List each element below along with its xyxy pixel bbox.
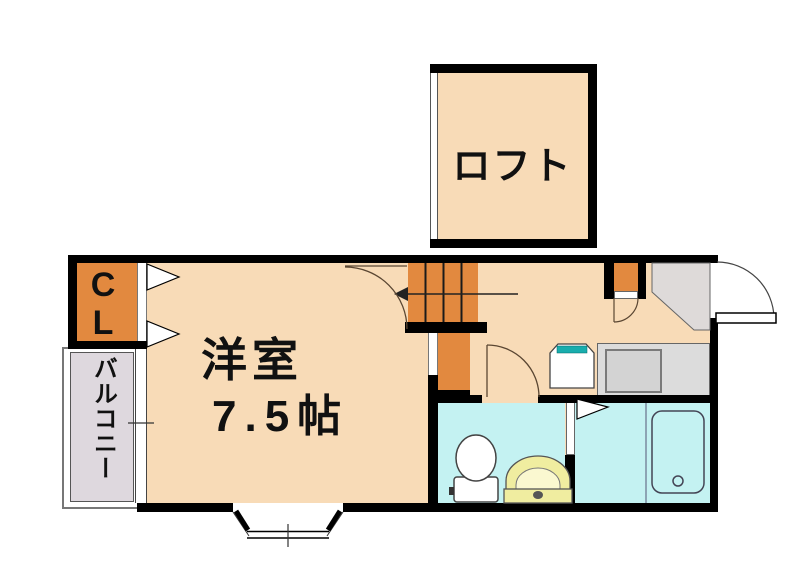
bathroom-folding-door-icon xyxy=(577,399,608,419)
entrance-door xyxy=(716,262,776,323)
floor-plan-canvas: ロフト CL バルコニー xyxy=(0,0,800,573)
washroom-door xyxy=(487,345,539,397)
washbasin xyxy=(504,456,572,503)
main-room-size: 7.5帖 xyxy=(212,380,349,444)
shoe-cabinet-door xyxy=(614,298,638,322)
entry-floor xyxy=(652,263,710,330)
bay-window xyxy=(233,511,343,547)
room-door xyxy=(345,266,407,329)
washing-machine xyxy=(550,344,594,388)
toilet xyxy=(449,435,498,502)
closet-folding-door-icon xyxy=(147,264,179,347)
stair-direction-arrow-icon xyxy=(394,287,518,301)
bathtub xyxy=(652,411,704,493)
stair-steps xyxy=(426,263,462,322)
fixtures-linework xyxy=(0,0,800,573)
